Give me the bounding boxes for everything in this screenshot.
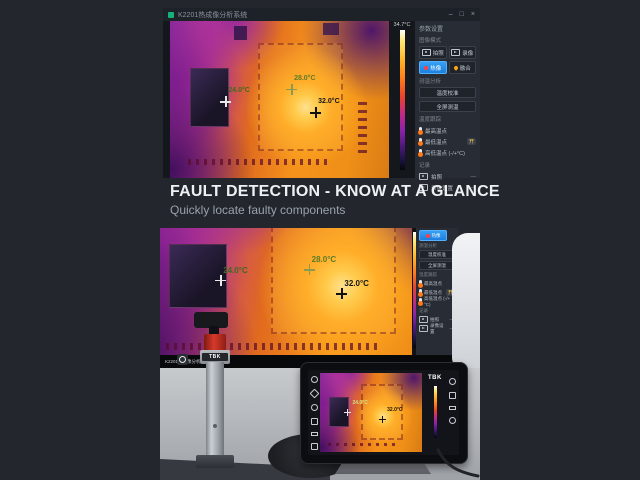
menu-icon <box>311 432 318 436</box>
fullscreen-measure-button[interactable]: 全屏测温 <box>419 261 455 270</box>
fullscreen-measure-button[interactable]: 全屏测温 <box>419 101 476 112</box>
section-label: 记录 <box>419 308 455 314</box>
mode-photo-button[interactable]: 拍照 <box>419 46 447 59</box>
camera-icon <box>419 316 428 323</box>
close-button[interactable]: × <box>471 8 475 21</box>
crosshair-icon <box>336 288 347 299</box>
mode-video-button[interactable]: 录像 <box>449 46 477 59</box>
thermal-image: 24.0°C 28.0°C 32.0°C <box>170 21 389 178</box>
hilo-temp-row[interactable]: 高低温点 (-/+°C) <box>419 147 476 158</box>
marketing-page: K2201热成像分析系统 – □ × 24.0°C 28.0°C <box>0 0 640 480</box>
gear-icon <box>311 376 318 383</box>
menu-icon <box>449 406 456 410</box>
thermal-view-zoomed: 24.0°C 28.0°C 32.0°C <box>160 228 412 355</box>
pcb-pads <box>358 100 367 153</box>
mode-thermal-button[interactable]: 热像 <box>419 61 447 74</box>
pcb-component <box>234 26 247 40</box>
camera-icon <box>311 443 318 450</box>
layers-icon <box>311 418 318 425</box>
crosshair-icon <box>220 96 231 107</box>
pcb-pads <box>188 159 333 165</box>
temp-marker-mid: 28.0°C <box>304 264 315 275</box>
calibration-button[interactable]: 温度校准 <box>419 250 455 259</box>
temp-marker-low: 24.0°C <box>220 96 231 107</box>
stand-base <box>196 455 234 468</box>
max-temp-row[interactable]: 最高温点 <box>419 125 476 136</box>
tablet-thermal-view: 24.0°C 32.0°C <box>320 373 422 452</box>
scale-max-label: 34.7°C <box>391 22 413 28</box>
stand-column <box>206 362 224 460</box>
thermometer-icon <box>419 280 422 287</box>
temperature-scale: 34.7°C <box>391 22 413 178</box>
headline-subtitle: Quickly locate faulty components <box>170 203 345 217</box>
video-icon <box>451 49 460 56</box>
crosshair-icon <box>344 409 351 416</box>
brand-plate: TBK <box>202 353 228 361</box>
thermal-view: 24.0°C 28.0°C 32.0°C <box>170 21 389 178</box>
tablet-right-toolbar <box>449 378 456 424</box>
tablet-left-toolbar <box>311 376 318 450</box>
record-dot-icon <box>426 234 430 238</box>
app-logo-icon <box>168 12 174 18</box>
color-scale-bar <box>400 30 405 170</box>
flame-icon <box>453 65 459 71</box>
thermal-image: 24.0°C 28.0°C 32.0°C <box>160 228 412 355</box>
info-icon <box>449 378 456 385</box>
section-label: 测温分析 <box>419 243 455 249</box>
camera-icon <box>419 173 428 180</box>
minimize-button[interactable]: – <box>449 8 453 21</box>
shutter-icon <box>449 417 456 424</box>
thermal-image: 24.0°C 32.0°C <box>320 373 422 452</box>
crosshair-icon <box>310 107 321 118</box>
thermometer-icon <box>419 127 422 134</box>
tablet-screen: 24.0°C 32.0°C TBK <box>308 370 459 455</box>
section-label: 测温分析 <box>419 77 476 85</box>
color-scale-bar <box>434 386 437 438</box>
crosshair-icon <box>286 84 297 95</box>
pcb-pads <box>328 443 395 446</box>
crosshair-icon <box>215 275 226 286</box>
calibration-button[interactable]: 温度校准 <box>419 87 476 98</box>
temp-marker-low: 24.0°C <box>344 409 351 416</box>
grid-icon <box>449 392 456 399</box>
section-label: 图像模式 <box>419 36 476 44</box>
panel-header: 参数设置 <box>419 24 476 33</box>
device-back-edge <box>452 233 480 368</box>
min-temp-row[interactable]: 最低温点 开 <box>419 136 476 147</box>
target-icon <box>311 404 318 411</box>
section-label: 温度跟踪 <box>419 115 476 123</box>
pcb-chip-large <box>271 228 396 334</box>
video-icon <box>419 325 428 332</box>
camera-icon <box>422 49 431 56</box>
app-window: K2201热成像分析系统 – □ × 24.0°C 28.0°C <box>163 8 480 178</box>
gear-icon <box>177 354 188 365</box>
record-settings-row[interactable]: 录像设置 — <box>419 324 455 333</box>
navigate-icon <box>310 389 320 399</box>
crosshair-icon <box>304 264 315 275</box>
pcb-component <box>323 23 338 36</box>
record-dot-icon <box>424 66 428 70</box>
temp-marker-high: 32.0°C <box>379 416 386 423</box>
section-label: 记录 <box>419 161 476 169</box>
thermometer-icon <box>419 149 422 156</box>
temp-marker-high: 32.0°C <box>336 288 347 299</box>
pcb-pads <box>166 343 382 350</box>
window-title: K2201热成像分析系统 <box>178 10 247 20</box>
temp-marker-high: 32.0°C <box>310 107 321 118</box>
mode-thermal-button[interactable]: 热像 <box>419 230 447 241</box>
snapshot-row[interactable]: 拍照 — <box>419 171 476 182</box>
thermometer-icon <box>419 289 422 296</box>
headline-title: FAULT DETECTION - KNOW AT A GLANCE <box>170 183 500 201</box>
thermometer-icon <box>419 298 422 305</box>
device-brand-label: TBK <box>209 354 221 360</box>
pcb-chip-large <box>258 43 343 151</box>
section-label: 温度跟踪 <box>419 272 455 278</box>
title-bar: K2201热成像分析系统 – □ × <box>163 8 480 21</box>
maximize-button[interactable]: □ <box>460 8 464 21</box>
thermometer-icon <box>419 138 422 145</box>
mode-fusion-button[interactable]: 融合 <box>449 61 477 74</box>
settings-panel: 参数设置 图像模式 拍照 录像 热像 融合 <box>415 21 480 178</box>
usb-cable <box>428 446 480 480</box>
max-temp-row[interactable]: 最高温点 <box>419 279 455 288</box>
hilo-temp-row[interactable]: 高低温点 (-/+°C) <box>419 297 455 306</box>
toggle-badge[interactable]: 开 <box>467 138 476 145</box>
tablet-brand-label: TBK <box>428 375 442 381</box>
temp-marker-mid: 28.0°C <box>286 84 297 95</box>
crosshair-icon <box>379 416 386 423</box>
temp-marker-low: 24.0°C <box>215 275 226 286</box>
